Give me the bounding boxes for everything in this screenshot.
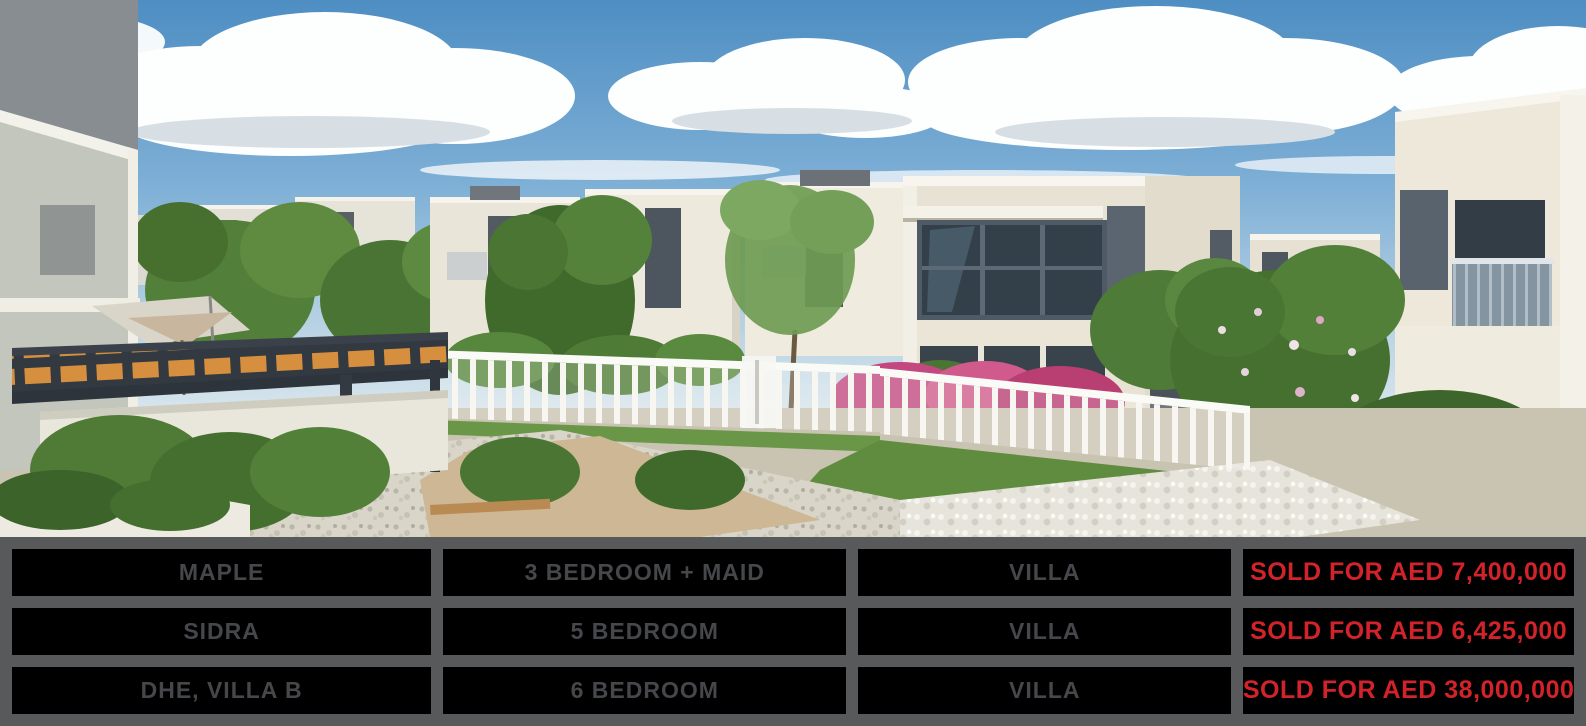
layout-label: 5 BEDROOM bbox=[571, 618, 719, 645]
type-label: VILLA bbox=[1009, 618, 1080, 645]
table-cell-layout: 5 BEDROOM bbox=[443, 608, 846, 655]
table-cell-community: DHE, VILLA B bbox=[12, 667, 431, 714]
table-cell-community: MAPLE bbox=[12, 549, 431, 596]
type-label: VILLA bbox=[1009, 559, 1080, 586]
price-label: SOLD FOR AED 38,000,000 bbox=[1243, 676, 1574, 705]
price-label: SOLD FOR AED 7,400,000 bbox=[1250, 558, 1567, 587]
layout-label: 6 BEDROOM bbox=[571, 677, 719, 704]
type-label: VILLA bbox=[1009, 677, 1080, 704]
community-label: MAPLE bbox=[179, 559, 265, 586]
community-label: DHE, VILLA B bbox=[141, 677, 303, 704]
table-cell-layout: 6 BEDROOM bbox=[443, 667, 846, 714]
layout-label: 3 BEDROOM + MAID bbox=[525, 559, 765, 586]
price-label: SOLD FOR AED 6,425,000 bbox=[1250, 617, 1567, 646]
sold-listings-banner: MAPLE 3 BEDROOM + MAID VILLA SOLD FOR AE… bbox=[0, 0, 1586, 726]
table-cell-type: VILLA bbox=[858, 608, 1231, 655]
table-cell-price: SOLD FOR AED 6,425,000 bbox=[1243, 608, 1574, 655]
table-cell-type: VILLA bbox=[858, 549, 1231, 596]
community-label: SIDRA bbox=[183, 618, 260, 645]
table-cell-layout: 3 BEDROOM + MAID bbox=[443, 549, 846, 596]
table-cell-price: SOLD FOR AED 38,000,000 bbox=[1243, 667, 1574, 714]
sold-listings-table: MAPLE 3 BEDROOM + MAID VILLA SOLD FOR AE… bbox=[0, 537, 1586, 726]
table-cell-type: VILLA bbox=[858, 667, 1231, 714]
property-photo bbox=[0, 0, 1586, 537]
table-cell-community: SIDRA bbox=[12, 608, 431, 655]
table-cell-price: SOLD FOR AED 7,400,000 bbox=[1243, 549, 1574, 596]
